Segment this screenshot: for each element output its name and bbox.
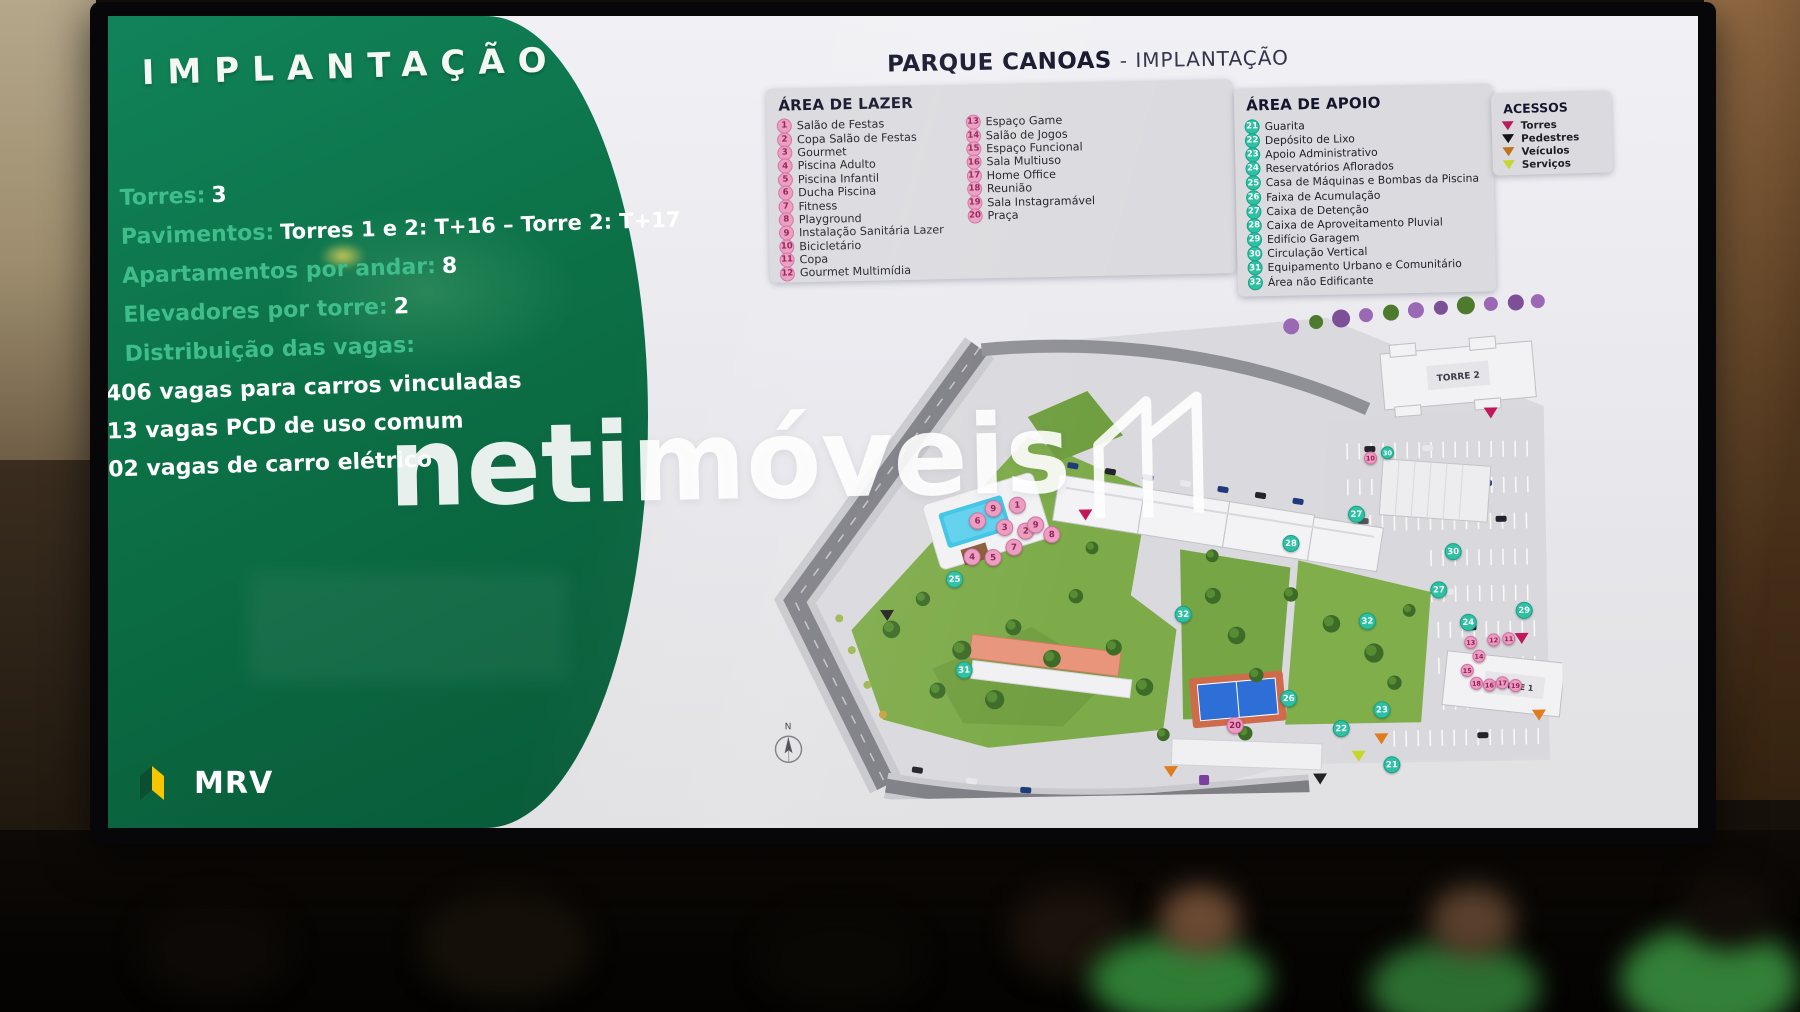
- map-access-arrow: [1532, 710, 1546, 721]
- site-plan-map: TORRE 2 TORRE 1: [726, 288, 1565, 802]
- audience-head: [140, 900, 290, 1000]
- stat-label: Pavimentos:: [121, 220, 275, 250]
- slide: IMPLANTAÇÃO Torres:3 Pavimentos:Torres 1…: [108, 16, 1698, 828]
- access-arrow-icon: [1502, 134, 1514, 143]
- access-label: Serviços: [1522, 157, 1571, 170]
- legend-item-label: Piscina Infantil: [798, 171, 879, 186]
- map-marker-pink: 16: [1483, 678, 1496, 691]
- map-access-arrow: [1515, 633, 1529, 644]
- legend-item-number: 24: [1245, 161, 1260, 176]
- legend-item-label: Reunião: [987, 181, 1032, 195]
- access-legend-row: Serviços: [1503, 156, 1603, 172]
- map-access-arrow: [880, 610, 894, 621]
- access-label: Pedestres: [1521, 131, 1579, 145]
- parking-details: 406 vagas para carros vinculadas 13 vaga…: [108, 365, 638, 483]
- compass: N: [775, 722, 802, 762]
- legend-item-label: Sala Multiuso: [986, 154, 1061, 169]
- legend-item-label: Depósito de Lixo: [1265, 132, 1355, 147]
- mrv-logo-text: MRV: [194, 766, 273, 801]
- legend-item-label: Edifício Garagem: [1267, 231, 1360, 246]
- legend-item-number: 22: [1245, 133, 1260, 148]
- legend-title: ÁREA DE LAZER: [778, 87, 1222, 114]
- audience-head: [760, 910, 920, 1010]
- legend-item-label: Home Office: [987, 168, 1057, 182]
- legend-column: 21 Guarita 22 Depósito de Lixo 23 Apoio …: [1244, 115, 1486, 290]
- stat-value: 3: [211, 183, 227, 208]
- map-access-arrow: [1374, 733, 1388, 744]
- stat-label: Torres:: [119, 183, 205, 211]
- stat-elevadores: Elevadores por torre:2: [123, 287, 634, 328]
- stat-value: 8: [441, 253, 457, 278]
- legend-item-label: Guarita: [1265, 119, 1305, 133]
- legend-item-label: Apoio Administrativo: [1265, 146, 1378, 161]
- legend-item-label: Praça: [987, 209, 1018, 223]
- legend-item-number: 12: [780, 266, 795, 281]
- legend-item-label: Faixa de Acumulação: [1266, 188, 1381, 203]
- legend-item-number: 20: [967, 208, 982, 223]
- mrv-logo-mark: [138, 764, 184, 802]
- wood-ceiling: [1704, 0, 1800, 800]
- stat-value: [421, 333, 422, 358]
- legend-column: 13 Espaço Game 14 Salão de Jogos 15: [965, 113, 1096, 276]
- legend-item-label: Espaço Funcional: [986, 140, 1083, 155]
- legend-item-number: 27: [1246, 204, 1261, 219]
- legend-item-label: Fitness: [798, 199, 837, 213]
- legend-item-label: Área não Edificante: [1268, 274, 1374, 289]
- map-access-arrow: [1078, 509, 1092, 520]
- compass-label: N: [785, 722, 792, 732]
- audience-area: [0, 830, 1800, 1012]
- entry-building: [1171, 739, 1322, 770]
- slide-title: IMPLANTAÇÃO: [141, 38, 626, 93]
- mrv-logo: MRV: [138, 764, 273, 802]
- legend-item-label: Salão de Festas: [797, 118, 885, 133]
- legend-item-number: 31: [1247, 261, 1262, 276]
- legend-title: ACESSOS: [1503, 99, 1601, 117]
- legend-item-label: Gourmet: [797, 145, 846, 159]
- legend-item-label: Espaço Game: [985, 114, 1062, 129]
- photo-of-presentation-screen: IMPLANTAÇÃO Torres:3 Pavimentos:Torres 1…: [0, 0, 1800, 1012]
- legend-area-de-lazer: ÁREA DE LAZER 1 Salão de Festas 2: [766, 79, 1236, 283]
- project-stats: Torres:3 Pavimentos:Torres 1 e 2: T+16 –…: [119, 170, 634, 367]
- tv-frame: IMPLANTAÇÃO Torres:3 Pavimentos:Torres 1…: [90, 2, 1716, 844]
- room-wall: [0, 0, 96, 480]
- parking-line: 02 vagas de carro elétrico: [108, 441, 638, 483]
- legend-item-label: Copa Salão de Festas: [797, 130, 917, 146]
- legend-item-number: 21: [1244, 119, 1259, 134]
- legend-item-label: Circulação Vertical: [1267, 245, 1367, 260]
- garage-building: [1379, 459, 1491, 522]
- stat-label: Distribuição das vagas:: [124, 333, 415, 367]
- stat-pavimentos: Pavimentos:Torres 1 e 2: T+16 – Torre 2:…: [121, 209, 632, 250]
- legend-item-label: Salão de Jogos: [986, 127, 1068, 142]
- audience-head: [1430, 885, 1515, 957]
- legend-item-number: 11: [779, 252, 794, 267]
- parking-line: 406 vagas para carros vinculadas: [108, 365, 636, 407]
- access-arrow-icon: [1502, 147, 1514, 156]
- legend-title: ÁREA DE APOIO: [1246, 92, 1482, 115]
- access-rows: Torres Pedestres Veículos: [1502, 117, 1603, 172]
- legend-column: 1 Salão de Festas 2 Copa Salão de Festas…: [777, 116, 945, 280]
- legend-item: 20 Praça: [967, 207, 1095, 223]
- project-name: PARQUE CANOAS: [887, 48, 1112, 78]
- audience-head: [1680, 870, 1775, 950]
- legend-area-de-apoio: ÁREA DE APOIO 21 Guarita 22 Depósito de …: [1234, 83, 1496, 296]
- access-label: Veículos: [1521, 144, 1569, 157]
- legend-item-label: Ducha Piscina: [798, 185, 876, 200]
- legend-item-label: Playground: [799, 212, 862, 226]
- stat-distribuicao: Distribuição das vagas:: [124, 326, 635, 367]
- parking-line: 13 vagas PCD de uso comum: [108, 403, 637, 445]
- stat-label: Apartamentos por andar:: [122, 254, 436, 289]
- legend-item-number: 29: [1247, 232, 1262, 247]
- legend-item-label: Reservatórios Aflorados: [1265, 160, 1393, 176]
- legend-item-label: Bicicletário: [799, 239, 861, 253]
- window-reflection: [248, 572, 568, 682]
- stat-value: Torres 1 e 2: T+16 – Torre 2: T+17: [280, 207, 681, 244]
- legend-item-number: 28: [1247, 218, 1262, 233]
- legend-item-number: 23: [1245, 147, 1260, 162]
- stat-torres: Torres:3: [119, 170, 630, 211]
- legend-acessos: ACESSOS Torres Pedestres: [1491, 90, 1613, 175]
- map-access-arrow: [1164, 766, 1178, 777]
- map-equipment-marker: [1199, 775, 1209, 785]
- legend-item-label: Caixa de Detenção: [1266, 203, 1369, 218]
- legend-item-number: 26: [1246, 190, 1261, 205]
- legend-item-label: Gourmet Multimídia: [800, 264, 911, 279]
- access-arrow-icon: [1503, 160, 1515, 169]
- left-panel: IMPLANTAÇÃO Torres:3 Pavimentos:Torres 1…: [108, 16, 648, 828]
- legend-item-number: 32: [1248, 275, 1263, 290]
- audience-head: [1160, 885, 1240, 955]
- map-access-arrow: [1352, 751, 1366, 762]
- legend-item-number: 25: [1246, 176, 1261, 191]
- access-label: Torres: [1521, 118, 1557, 131]
- legend-item: 12 Gourmet Multimídia: [780, 263, 945, 280]
- access-arrow-icon: [1502, 121, 1514, 130]
- legend-item-label: Piscina Adulto: [798, 158, 876, 173]
- stat-apartamentos: Apartamentos por andar:8: [122, 248, 633, 289]
- stat-value: 2: [393, 294, 409, 319]
- audience-head: [420, 890, 590, 1000]
- legend-item-number: 30: [1247, 246, 1262, 261]
- map-header: PARQUE CANOAS- IMPLANTAÇÃO: [808, 43, 1368, 79]
- legend-item-label: Sala Instagramável: [987, 194, 1095, 209]
- header-suffix: - IMPLANTAÇÃO: [1120, 45, 1289, 72]
- stat-label: Elevadores por torre:: [123, 295, 388, 328]
- map-access-arrow: [1484, 407, 1498, 418]
- map-access-arrow: [1313, 773, 1327, 784]
- legend-item-label: Copa: [799, 253, 828, 267]
